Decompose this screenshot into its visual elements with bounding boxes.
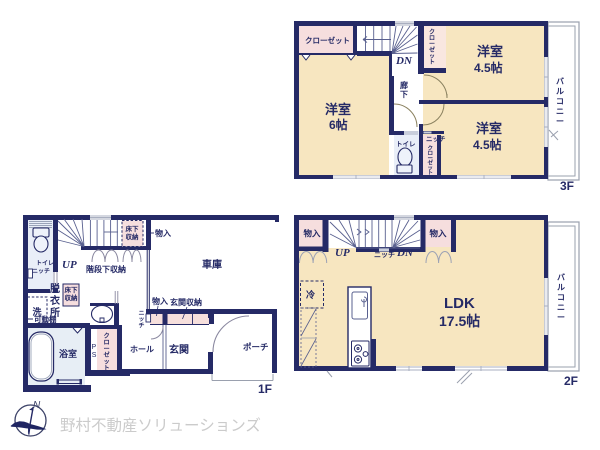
svg-text:トイレ: トイレ: [396, 140, 416, 148]
svg-text:2F: 2F: [564, 374, 578, 388]
svg-text:PS: PS: [92, 344, 97, 359]
svg-text:クローゼット: クローゼット: [305, 35, 350, 45]
svg-text:4.5帖: 4.5帖: [474, 60, 503, 75]
svg-text:床下収納: 床下収納: [65, 285, 79, 302]
svg-text:階段下収納: 階段下収納: [86, 264, 126, 274]
svg-text:物入: 物入: [152, 296, 168, 306]
svg-text:ニッチ: ニッチ: [374, 251, 395, 259]
svg-text:洋室: 洋室: [325, 102, 351, 117]
svg-text:6帖: 6帖: [329, 117, 348, 132]
svg-text:3F: 3F: [560, 179, 574, 193]
svg-text:N: N: [33, 400, 41, 411]
svg-text:可動棚: 可動棚: [34, 314, 57, 324]
svg-text:廊下: 廊下: [400, 80, 408, 99]
svg-text:床下収納: 床下収納: [126, 224, 140, 241]
svg-text:バルコニー: バルコニー: [557, 273, 565, 322]
svg-text:ニッチ: ニッチ: [426, 135, 446, 143]
svg-text:クローゼット: クローゼット: [104, 332, 111, 372]
svg-text:物入: 物入: [304, 229, 322, 239]
svg-text:ニッチ: ニッチ: [139, 310, 145, 329]
svg-text:玄関: 玄関: [169, 343, 189, 356]
svg-text:トイレ: トイレ: [36, 260, 54, 267]
svg-text:UP: UP: [62, 259, 77, 271]
svg-text:クローゼット: クローゼット: [428, 144, 434, 177]
svg-text:物入: 物入: [155, 228, 171, 238]
svg-text:LDK: LDK: [444, 295, 475, 312]
svg-text:バルコニー: バルコニー: [556, 77, 564, 126]
svg-text:ホール: ホール: [130, 345, 154, 354]
svg-text:17.5帖: 17.5帖: [439, 313, 480, 329]
svg-text:UP: UP: [335, 247, 350, 259]
svg-text:冷: 冷: [306, 289, 315, 300]
svg-text:クローゼット: クローゼット: [429, 28, 435, 66]
svg-text:物入: 物入: [430, 229, 448, 239]
svg-text:4.5帖: 4.5帖: [473, 137, 502, 152]
svg-text:DN: DN: [396, 247, 414, 259]
svg-text:洋室: 洋室: [476, 121, 502, 136]
svg-text:DN: DN: [395, 55, 413, 67]
svg-text:1F: 1F: [258, 382, 272, 396]
svg-text:ポーチ: ポーチ: [243, 342, 269, 352]
svg-text:洋室: 洋室: [477, 44, 503, 59]
svg-text:脱衣所: 脱衣所: [50, 282, 60, 319]
svg-text:玄関収納: 玄関収納: [170, 297, 202, 307]
svg-text:浴室: 浴室: [59, 348, 77, 359]
svg-text:ニッチ: ニッチ: [32, 268, 50, 275]
svg-text:車庫: 車庫: [202, 258, 222, 271]
svg-text:野村不動産ソリューションズ: 野村不動産ソリューションズ: [60, 417, 261, 435]
